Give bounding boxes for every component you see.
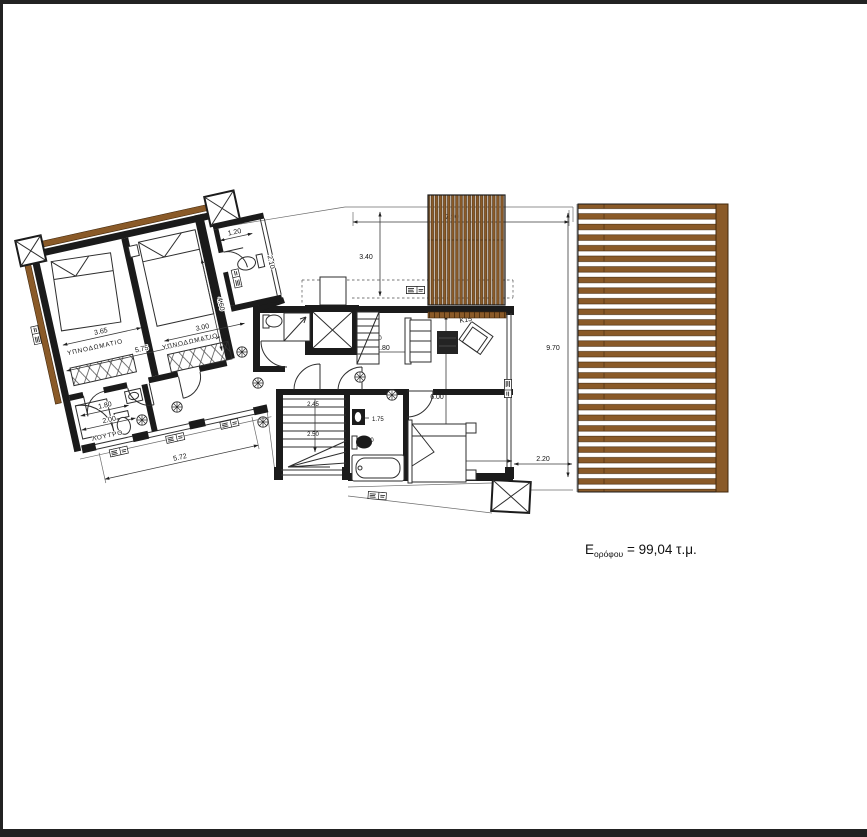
- dim-bath-a: 1.75: [372, 417, 384, 423]
- wardrobe-1: [70, 354, 136, 385]
- page-border-top: [0, 0, 867, 4]
- area-label-prefix: E: [585, 542, 594, 557]
- page-border-left: [0, 0, 3, 837]
- armchair: [459, 322, 493, 355]
- page-border-bottom: [0, 829, 867, 837]
- central-wc: [263, 313, 310, 341]
- wc-toilet: [266, 315, 282, 327]
- wing-column-tl: [15, 235, 46, 266]
- wing: 3.65 5.75 3.00 4.60 1.20 2.10 1.80 2.00 …: [11, 185, 312, 491]
- sofa: [405, 318, 431, 364]
- pergola-post: [716, 204, 728, 492]
- coffee-table: [437, 331, 458, 354]
- pergola-top: [428, 195, 506, 318]
- dim-terrace-top-depth: 3.40: [359, 254, 373, 261]
- bed-1: [51, 253, 121, 331]
- area-label: Eορόφου = 99,04 τ.μ.: [585, 542, 697, 559]
- dim-stair-b: 2.50: [307, 432, 319, 438]
- pergola-right: [577, 204, 728, 492]
- bathtub: [352, 455, 404, 481]
- bedroom1-label: ΥΠΝΟΔΩΜΑΤΙΟ: [67, 338, 124, 357]
- dim-terrace-right-width: 2.20: [536, 456, 550, 463]
- area-label-sub: ορόφου: [594, 549, 624, 559]
- floor-plan-page: 7.90 3.40 9.70 2.20 6.00 3.40 1.80 1.75 …: [0, 0, 867, 837]
- dim-wing-bath-depth: 2.00: [102, 415, 117, 425]
- dim-terrace-right-depth: 9.70: [546, 345, 560, 352]
- living-room: K15: [405, 316, 493, 364]
- area-label-rest: = 99,04 τ.μ.: [623, 542, 697, 557]
- bed-headboard: [408, 420, 412, 483]
- corner-column: [491, 480, 531, 513]
- bed-main: [412, 424, 466, 482]
- dim-wing-wc-depth: 2.10: [266, 255, 276, 270]
- toilet-bowl: [356, 436, 372, 449]
- wing-sink: [125, 388, 143, 403]
- floor-plan-drawing: 7.90 3.40 9.70 2.20 6.00 3.40 1.80 1.75 …: [0, 0, 867, 837]
- main-bedroom: [408, 420, 476, 483]
